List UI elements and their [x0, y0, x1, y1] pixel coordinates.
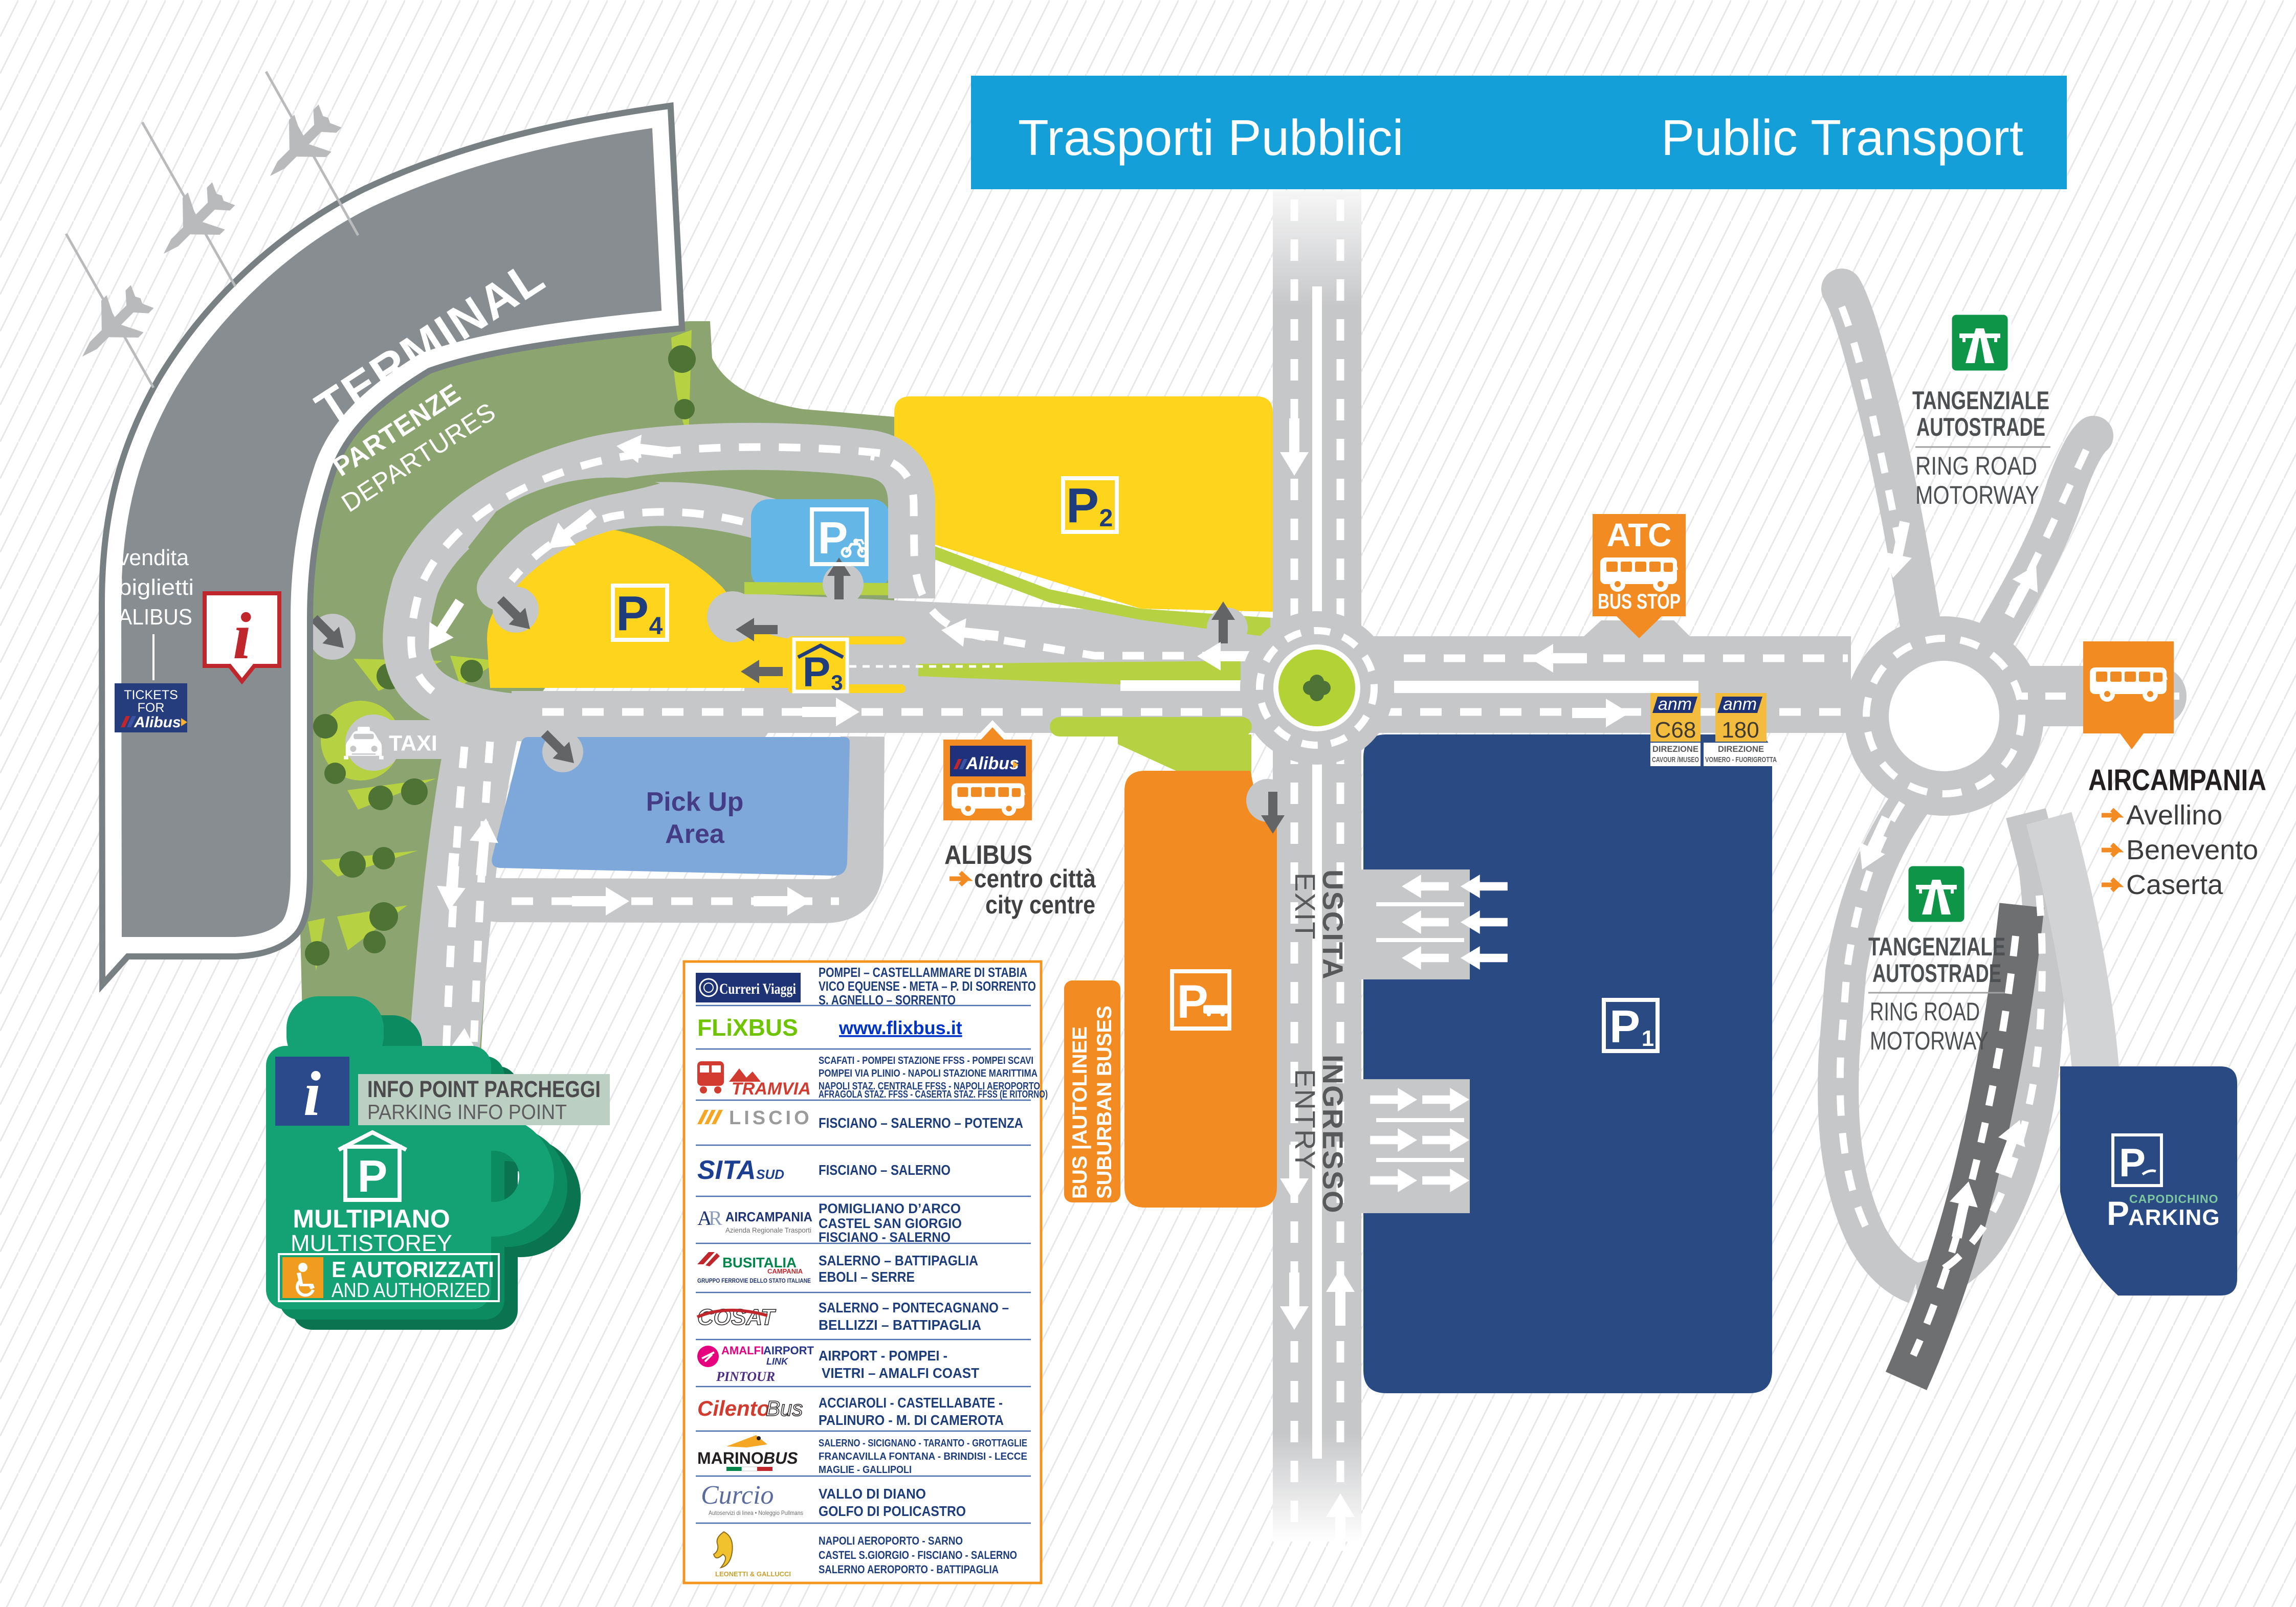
svg-text:TICKETS: TICKETS: [124, 688, 178, 702]
svg-text:POMPEI VIA PLINIO - NAPOLI S: POMPEI VIA PLINIO - NAPOLI STAZIONE MARI…: [819, 1067, 1037, 1079]
svg-text:Public Transport: Public Transport: [1661, 109, 2023, 166]
svg-text:TRAMVIA: TRAMVIA: [732, 1079, 811, 1099]
svg-text:CASTEL S.GIORGIO - FISCIANO -: CASTEL S.GIORGIO - FISCIANO - SALERNO: [819, 1549, 1017, 1561]
svg-text:BELLIZZI – BATTIPAGLIA: BELLIZZI – BATTIPAGLIA: [819, 1317, 981, 1333]
svg-text:MULTISTOREY: MULTISTOREY: [291, 1230, 452, 1256]
svg-text:P: P: [1609, 1001, 1640, 1053]
svg-text:SITA: SITA: [697, 1155, 756, 1185]
svg-text:RING ROAD: RING ROAD: [1870, 997, 1980, 1026]
svg-text:MARINO: MARINO: [697, 1449, 764, 1467]
svg-text:P: P: [616, 586, 649, 641]
svg-text:FISCIANO - SALERNO: FISCIANO - SALERNO: [819, 1230, 951, 1245]
svg-text:Pick Up: Pick Up: [646, 787, 744, 817]
svg-text:Azienda Regionale Trasporti: Azienda Regionale Trasporti: [725, 1226, 811, 1234]
svg-text:LEONETTI & GALLUCCI: LEONETTI & GALLUCCI: [715, 1570, 791, 1578]
svg-text:www.flixbus.it: www.flixbus.it: [838, 1017, 962, 1038]
svg-text:FOR: FOR: [138, 701, 165, 715]
svg-text:P: P: [803, 649, 831, 696]
svg-text:Curreri Viaggi: Curreri Viaggi: [719, 980, 796, 997]
svg-text:E AUTORIZZATI: E AUTORIZZATI: [332, 1257, 494, 1282]
svg-text:GOLFO DI POLICASTRO: GOLFO DI POLICASTRO: [819, 1503, 966, 1519]
svg-text:POMIGLIANO D’ARCO: POMIGLIANO D’ARCO: [819, 1201, 961, 1216]
svg-text:ATC: ATC: [1607, 517, 1672, 553]
svg-text:VIETRI – AMALFI COAST: VIETRI – AMALFI COAST: [822, 1365, 979, 1381]
svg-text:VOMERO - FUORIGROTTA: VOMERO - FUORIGROTTA: [1705, 755, 1777, 764]
svg-text:LISCIO: LISCIO: [729, 1107, 812, 1129]
svg-text:R: R: [709, 1207, 722, 1230]
svg-text:CAMPANIA: CAMPANIA: [767, 1267, 803, 1275]
svg-text:Bus: Bus: [766, 1396, 803, 1420]
svg-text:AMALFI: AMALFI: [721, 1344, 764, 1357]
svg-text:180: 180: [1721, 718, 1759, 743]
svg-text:city centre: city centre: [985, 890, 1095, 919]
svg-text:MULTIPIANO: MULTIPIANO: [293, 1204, 450, 1233]
svg-text:FISCIANO – SALERNO: FISCIANO – SALERNO: [819, 1162, 951, 1178]
svg-text:Benevento: Benevento: [2126, 835, 2258, 865]
svg-text:CAVOUR /MUSEO: CAVOUR /MUSEO: [1652, 755, 1699, 764]
svg-text:biglietti: biglietti: [118, 575, 194, 600]
svg-text:SUBURBAN BUSES: SUBURBAN BUSES: [1093, 1006, 1116, 1199]
svg-text:ARKING: ARKING: [2128, 1205, 2220, 1230]
svg-text:DIREZIONE: DIREZIONE: [1718, 744, 1764, 754]
svg-text:EXIT: EXIT: [1289, 873, 1321, 940]
svg-text:Area: Area: [665, 819, 725, 849]
svg-text:anm: anm: [1658, 695, 1692, 714]
svg-text:Caserta: Caserta: [2126, 869, 2223, 900]
svg-text:SALERNO - SICIGNANO - TARANTO: SALERNO - SICIGNANO - TARANTO - GROTTAGL…: [819, 1437, 1027, 1449]
svg-text:Curcio: Curcio: [701, 1481, 774, 1510]
svg-text:NAPOLI AEROPORTO - SARNO: NAPOLI AEROPORTO - SARNO: [819, 1534, 963, 1547]
svg-text:PINTOUR: PINTOUR: [716, 1369, 775, 1384]
svg-text:AIRPORT - POMPEI -: AIRPORT - POMPEI -: [819, 1348, 947, 1364]
svg-text:Alibus: Alibus: [134, 714, 181, 731]
svg-text:AUTOSTRADE: AUTOSTRADE: [1916, 413, 2045, 441]
svg-text:FISCIANO – SALERNO – POTENZA: FISCIANO – SALERNO – POTENZA: [819, 1115, 1023, 1131]
svg-text:i: i: [233, 599, 251, 673]
svg-text:3: 3: [831, 671, 843, 695]
svg-text:DIREZIONE: DIREZIONE: [1652, 744, 1698, 754]
svg-text:4: 4: [649, 613, 663, 640]
svg-text:CASTEL SAN GIORGIO: CASTEL SAN GIORGIO: [819, 1216, 962, 1231]
svg-text:SUD: SUD: [756, 1167, 784, 1182]
svg-text:CAPODICHINO: CAPODICHINO: [2129, 1192, 2219, 1206]
svg-text:VALLO DI DIANO: VALLO DI DIANO: [819, 1486, 926, 1502]
svg-text:TANGENZIALE: TANGENZIALE: [1868, 932, 2005, 961]
svg-text:P: P: [358, 1151, 388, 1201]
svg-text:P: P: [1066, 478, 1099, 533]
svg-text:P: P: [2107, 1194, 2129, 1232]
svg-text:FLiXBUS: FLiXBUS: [697, 1014, 798, 1041]
svg-text:2: 2: [1099, 505, 1113, 532]
svg-text:SALERNO AEROPORTO - BATTIPAG: SALERNO AEROPORTO - BATTIPAGLIA: [819, 1563, 999, 1576]
svg-text:Avellino: Avellino: [2126, 800, 2222, 831]
svg-text:AFRAGOLA STAZ. FFSS - CASERTA: AFRAGOLA STAZ. FFSS - CASERTA STAZ. FFSS…: [819, 1088, 1048, 1100]
svg-text:SCAFATI - POMPEI STAZIONE FFSS: SCAFATI - POMPEI STAZIONE FFSS - POMPEI …: [819, 1055, 1033, 1066]
svg-text:Trasporti Pubblici: Trasporti Pubblici: [1018, 109, 1403, 166]
svg-text:EBOLI – SERRE: EBOLI – SERRE: [819, 1269, 915, 1285]
svg-text:i: i: [303, 1059, 321, 1129]
svg-text:MOTORWAY: MOTORWAY: [1870, 1026, 1989, 1055]
svg-text:vendita: vendita: [118, 545, 189, 570]
svg-text:VICO EQUENSE - META – P. DI SO: VICO EQUENSE - META – P. DI SORRENTO: [819, 978, 1036, 994]
svg-text:INFO POINT PARCHEGGI: INFO POINT PARCHEGGI: [367, 1076, 601, 1102]
svg-text:RING ROAD: RING ROAD: [1915, 452, 2037, 480]
svg-text:POMPEI – CASTELLAMMARE DI STAB: POMPEI – CASTELLAMMARE DI STABIA: [819, 965, 1027, 980]
svg-text:LINK: LINK: [766, 1356, 789, 1367]
svg-text:SALERNO – PONTECAGNANO –: SALERNO – PONTECAGNANO –: [819, 1300, 1009, 1315]
svg-text:COSAT: COSAT: [697, 1305, 776, 1330]
svg-text:BUS: BUS: [763, 1449, 798, 1467]
svg-text:AND AUTHORIZED: AND AUTHORIZED: [332, 1279, 490, 1302]
svg-text:C68: C68: [1655, 718, 1696, 743]
svg-text:PARKING INFO POINT: PARKING INFO POINT: [367, 1100, 567, 1124]
svg-text:centro città: centro città: [974, 864, 1096, 893]
svg-text:1: 1: [1642, 1026, 1654, 1051]
svg-text:ENTRY: ENTRY: [1289, 1069, 1321, 1171]
svg-text:BUS STOP: BUS STOP: [1598, 589, 1681, 613]
svg-text:AUTOSTRADE: AUTOSTRADE: [1872, 959, 2001, 988]
svg-text:anm: anm: [1723, 695, 1757, 714]
svg-text:AIRPORT: AIRPORT: [763, 1344, 814, 1357]
svg-text:PALINURO - M. DI CAMEROTA: PALINURO - M. DI CAMEROTA: [819, 1412, 1004, 1428]
svg-text:Alibus: Alibus: [965, 754, 1019, 773]
svg-text:TANGENZIALE: TANGENZIALE: [1912, 386, 2049, 415]
svg-text:ALIBUS: ALIBUS: [118, 605, 192, 630]
svg-text:MOTORWAY: MOTORWAY: [1915, 481, 2039, 509]
svg-text:S. AGNELLO – SORRENTO: S. AGNELLO – SORRENTO: [819, 992, 956, 1008]
svg-text:TAXI: TAXI: [389, 731, 437, 755]
svg-text:Cilento: Cilento: [697, 1396, 770, 1420]
svg-text:P: P: [1177, 976, 1208, 1028]
svg-text:BUS |AUTOLINEE: BUS |AUTOLINEE: [1069, 1026, 1091, 1199]
svg-text:AIRCAMPANIA: AIRCAMPANIA: [725, 1209, 812, 1224]
svg-text:MAGLIE - GALLIPOLI: MAGLIE - GALLIPOLI: [819, 1464, 912, 1476]
svg-text:SALERNO – BATTIPAGLIA: SALERNO – BATTIPAGLIA: [819, 1253, 978, 1268]
svg-text:FRANCAVILLA FONTANA - BRIN: FRANCAVILLA FONTANA - BRINDISI - LECCE: [819, 1450, 1027, 1462]
svg-text:Autoservizi di linea • Noleggi: Autoservizi di linea • Noleggio Pullmans: [709, 1509, 803, 1516]
svg-text:AIRCAMPANIA: AIRCAMPANIA: [2088, 764, 2266, 797]
svg-text:GRUPPO FERROVIE DELLO STATO IT: GRUPPO FERROVIE DELLO STATO ITALIANE: [697, 1277, 811, 1284]
svg-text:ACCIAROLI - CASTELLABATE -: ACCIAROLI - CASTELLABATE -: [819, 1395, 1003, 1411]
svg-text:P: P: [2119, 1140, 2146, 1185]
